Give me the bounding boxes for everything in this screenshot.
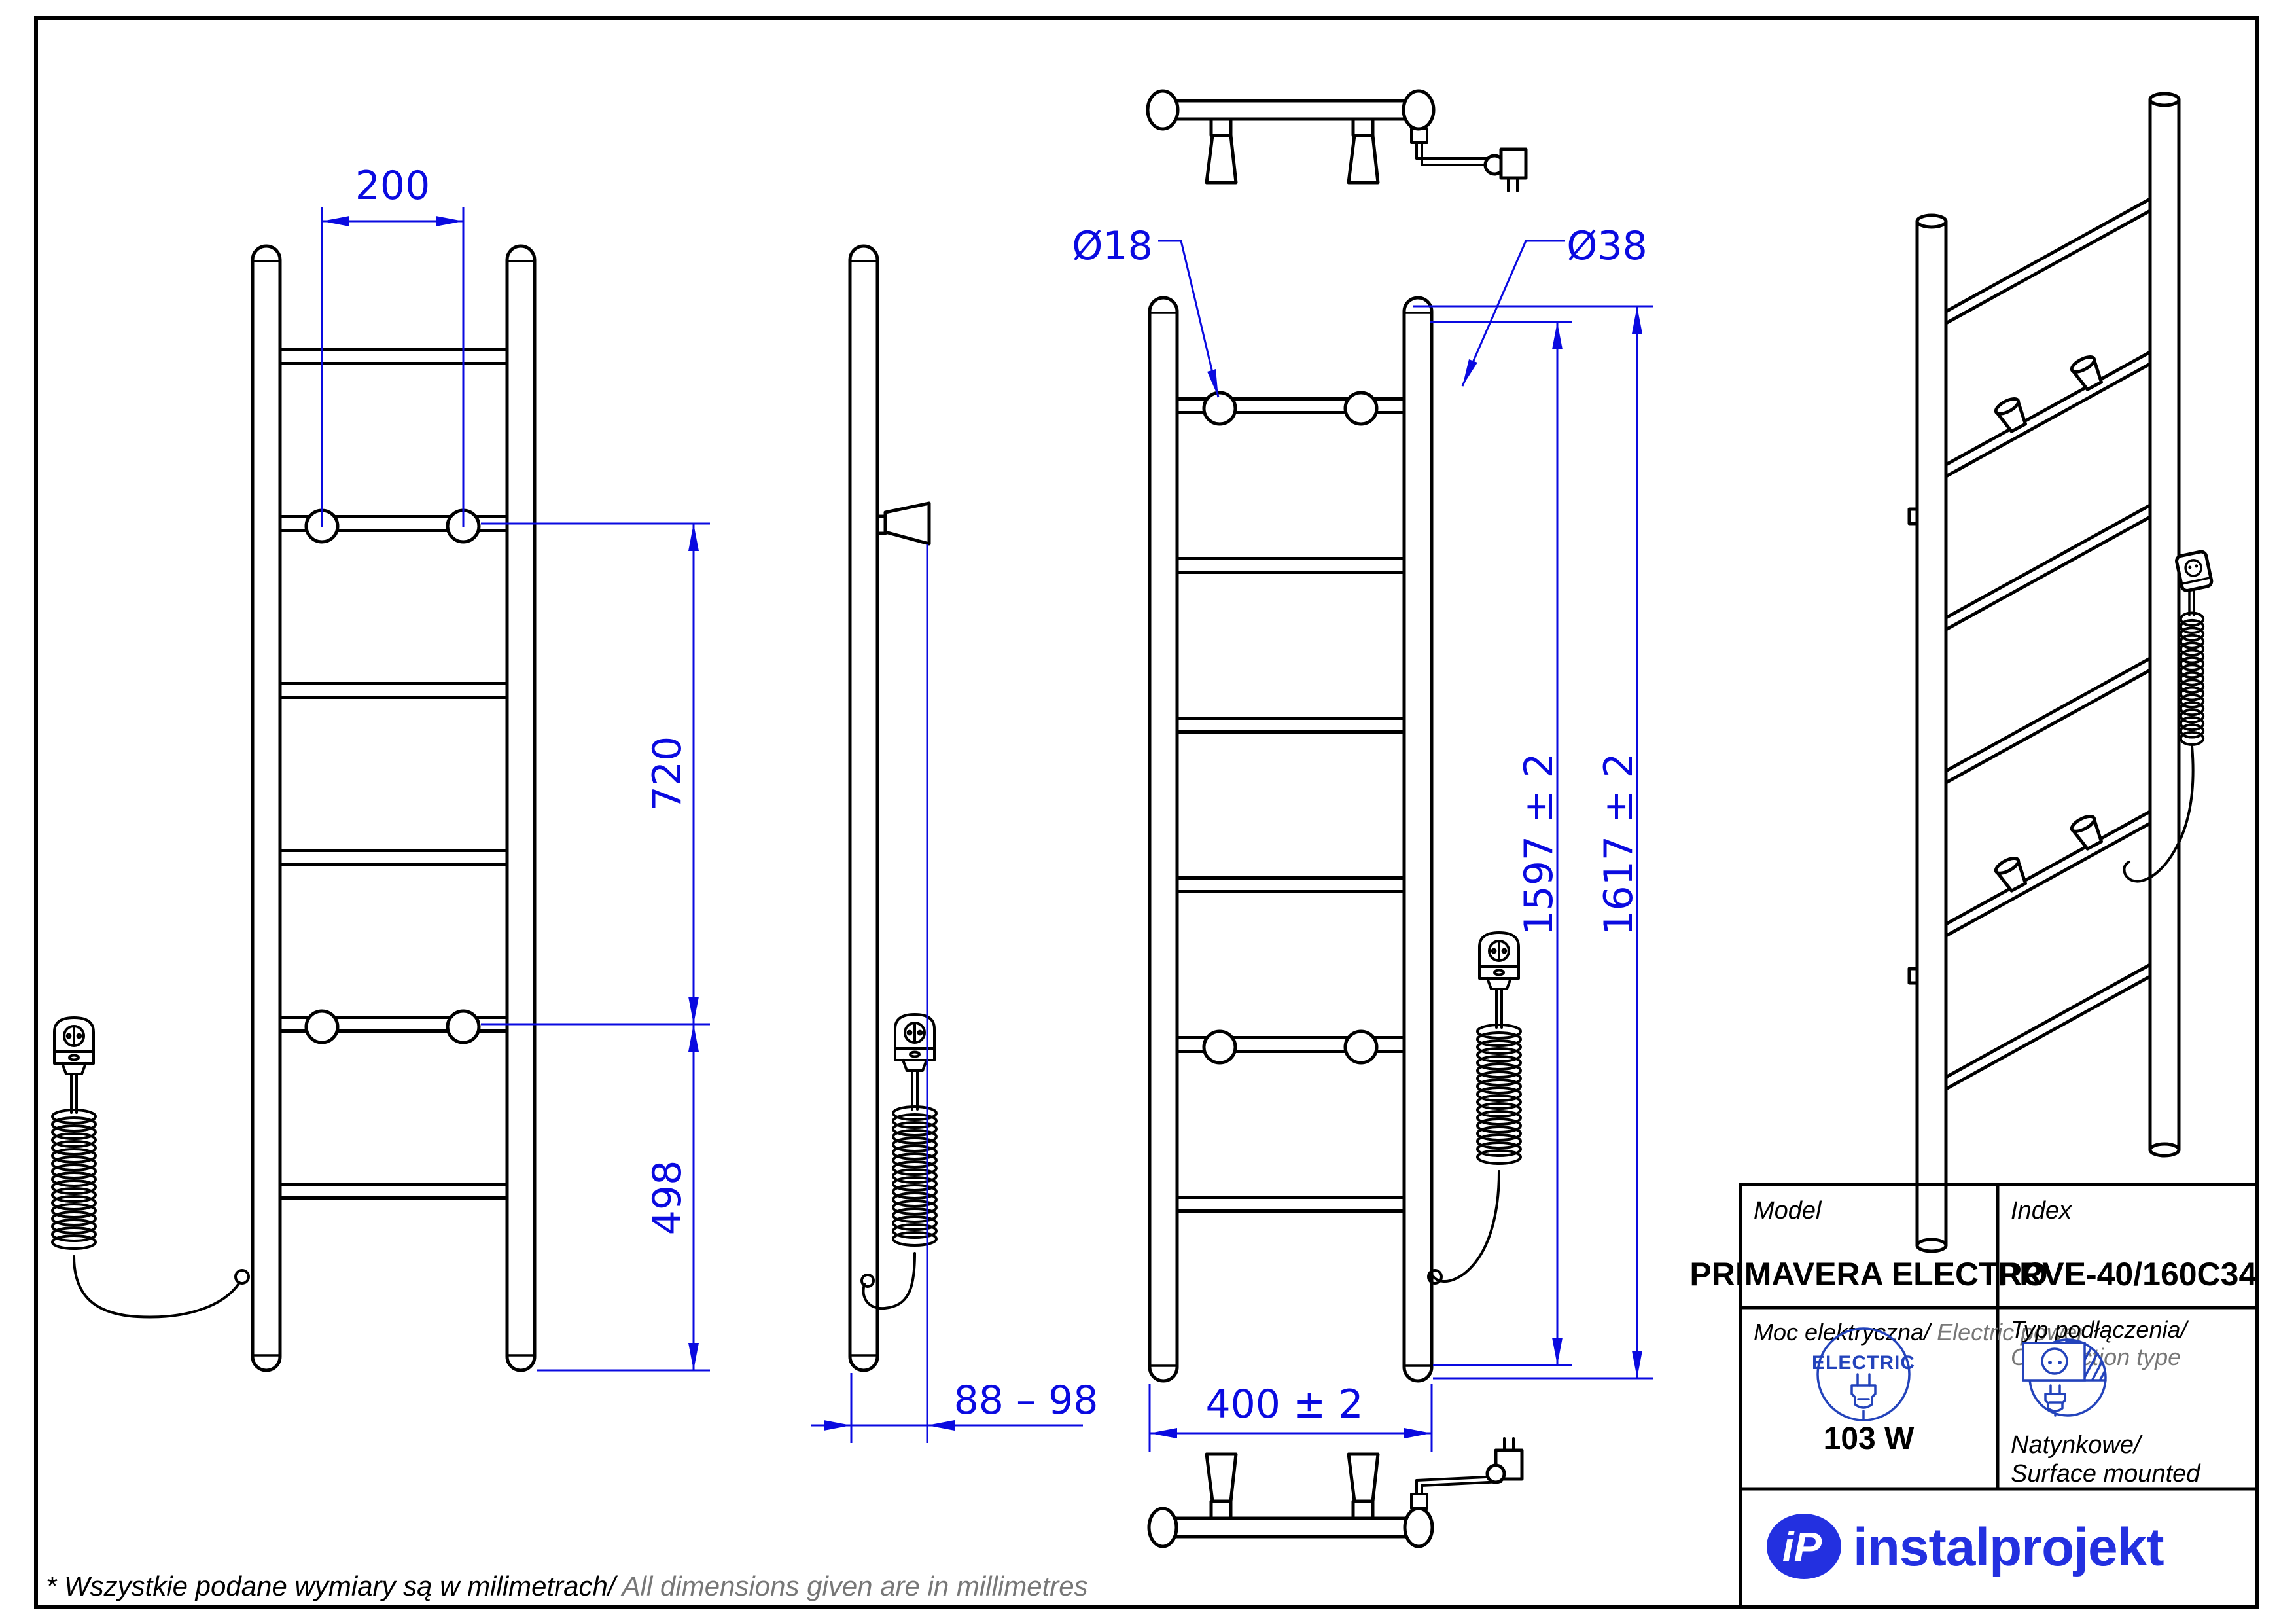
towel-hook	[1204, 393, 1235, 424]
bracket-collar	[1211, 1501, 1231, 1518]
model-value: PRIMAVERA ELECTRO	[1689, 1256, 2047, 1293]
logo-wordmark: instalprojekt	[1853, 1518, 2164, 1577]
power-value: 103 W	[1824, 1421, 1915, 1456]
dim-collector-diameter: Ø38	[1566, 223, 1648, 269]
bottom-view	[1149, 1438, 1522, 1546]
towel-hook	[306, 1011, 338, 1043]
towel-hook	[1345, 1031, 1377, 1063]
dimensions-note: * Wszystkie podane wymiary są w milimetr…	[46, 1571, 1088, 1601]
heating-element	[52, 1018, 249, 1317]
connection-value-en: Surface mounted	[2011, 1460, 2201, 1488]
rung	[274, 684, 516, 698]
drawing-sheet: 200 720 498 88 – 98 400 ± 2 1597 ± 2	[0, 0, 2296, 1623]
technical-drawing: 200 720 498 88 – 98 400 ± 2 1597 ± 2	[0, 0, 2296, 1623]
wall-bracket	[1207, 135, 1236, 183]
top-view	[1148, 91, 1526, 191]
dim-total-height: 1617 ± 2	[1596, 753, 1642, 935]
brand-logo: iP instalprojekt	[1767, 1514, 2164, 1579]
dim-hook-spacing: 200	[355, 163, 431, 209]
front-view	[52, 246, 535, 1370]
rung	[1171, 559, 1409, 573]
dim-width: 400 ± 2	[1205, 1382, 1363, 1427]
towel-hook	[1345, 393, 1377, 424]
svg-text:ELECTRIC: ELECTRIC	[1812, 1352, 1915, 1374]
wall-bracket	[1349, 1454, 1378, 1501]
wall-bracket	[877, 503, 929, 544]
collector-tube	[253, 246, 280, 1370]
collector-end	[1404, 91, 1434, 129]
perspective-view	[1909, 94, 2212, 1251]
bracket-collar	[1211, 119, 1231, 135]
logo-monogram: iP	[1782, 1524, 1822, 1571]
dim-mount-height: 1597 ± 2	[1516, 753, 1562, 935]
connection-value-pl: Natynkowe/	[2011, 1431, 2143, 1459]
towel-hook	[448, 1011, 479, 1043]
rung	[274, 350, 516, 364]
rung	[1171, 1198, 1409, 1211]
dim-wall-distance: 88 – 98	[954, 1378, 1099, 1423]
collector-end	[1405, 1508, 1432, 1546]
heating-element	[1428, 933, 1521, 1283]
towel-hook	[1204, 1031, 1235, 1063]
collector-end	[1148, 91, 1178, 129]
bracket-collar	[1353, 119, 1373, 135]
rung	[274, 1185, 516, 1198]
collector-end	[1149, 1508, 1176, 1546]
wall-bracket	[1207, 1454, 1236, 1501]
rung	[274, 851, 516, 865]
bracket-collar	[1353, 1501, 1373, 1518]
dim-hook-to-bottom: 498	[645, 1160, 690, 1236]
front-view-dimensioned	[1150, 298, 1521, 1381]
collector-tube	[1404, 298, 1432, 1381]
power-cord-plug	[1411, 129, 1526, 191]
dim-hook-span: 720	[645, 736, 690, 811]
power-cord-plug	[1411, 1438, 1522, 1508]
collector-tube	[1150, 298, 1177, 1381]
rung	[1171, 878, 1409, 892]
index-label: Index	[2011, 1197, 2073, 1224]
model-label: Model	[1754, 1197, 1822, 1224]
connection-header-pl: Typ podłączenia/	[2011, 1316, 2189, 1343]
dim-rung-diameter: Ø18	[1072, 223, 1153, 269]
side-view	[850, 246, 936, 1370]
collector-tube	[507, 246, 535, 1370]
rung	[1171, 719, 1409, 732]
wall-bracket	[1349, 135, 1378, 183]
collector-tube	[850, 246, 877, 1370]
index-value: PRVE-40/160C34	[1998, 1256, 2257, 1293]
